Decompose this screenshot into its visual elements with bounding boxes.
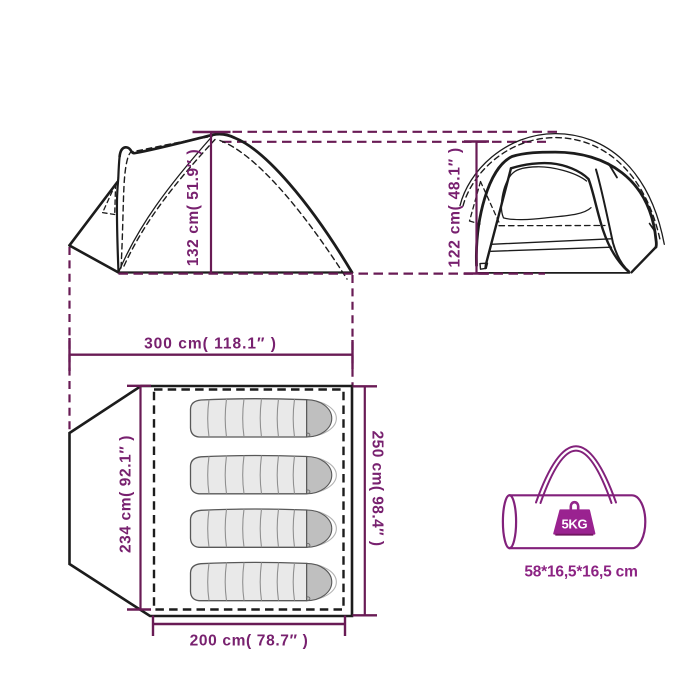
svg-text:200 cm( 78.7″ ): 200 cm( 78.7″ ) bbox=[190, 633, 309, 650]
svg-text:234 cm( 92.1″ ): 234 cm( 92.1″ ) bbox=[118, 435, 135, 553]
svg-text:122 cm( 48.1″ ): 122 cm( 48.1″ ) bbox=[447, 147, 464, 267]
svg-text:132 cm( 51.9″ ): 132 cm( 51.9″ ) bbox=[185, 149, 202, 266]
svg-text:5KG: 5KG bbox=[561, 517, 587, 532]
svg-text:58*16,5*16,5 cm: 58*16,5*16,5 cm bbox=[524, 564, 637, 581]
svg-text:250 cm( 98.4″ ): 250 cm( 98.4″ ) bbox=[369, 431, 386, 547]
svg-text:300 cm( 118.1″ ): 300 cm( 118.1″ ) bbox=[144, 335, 277, 352]
